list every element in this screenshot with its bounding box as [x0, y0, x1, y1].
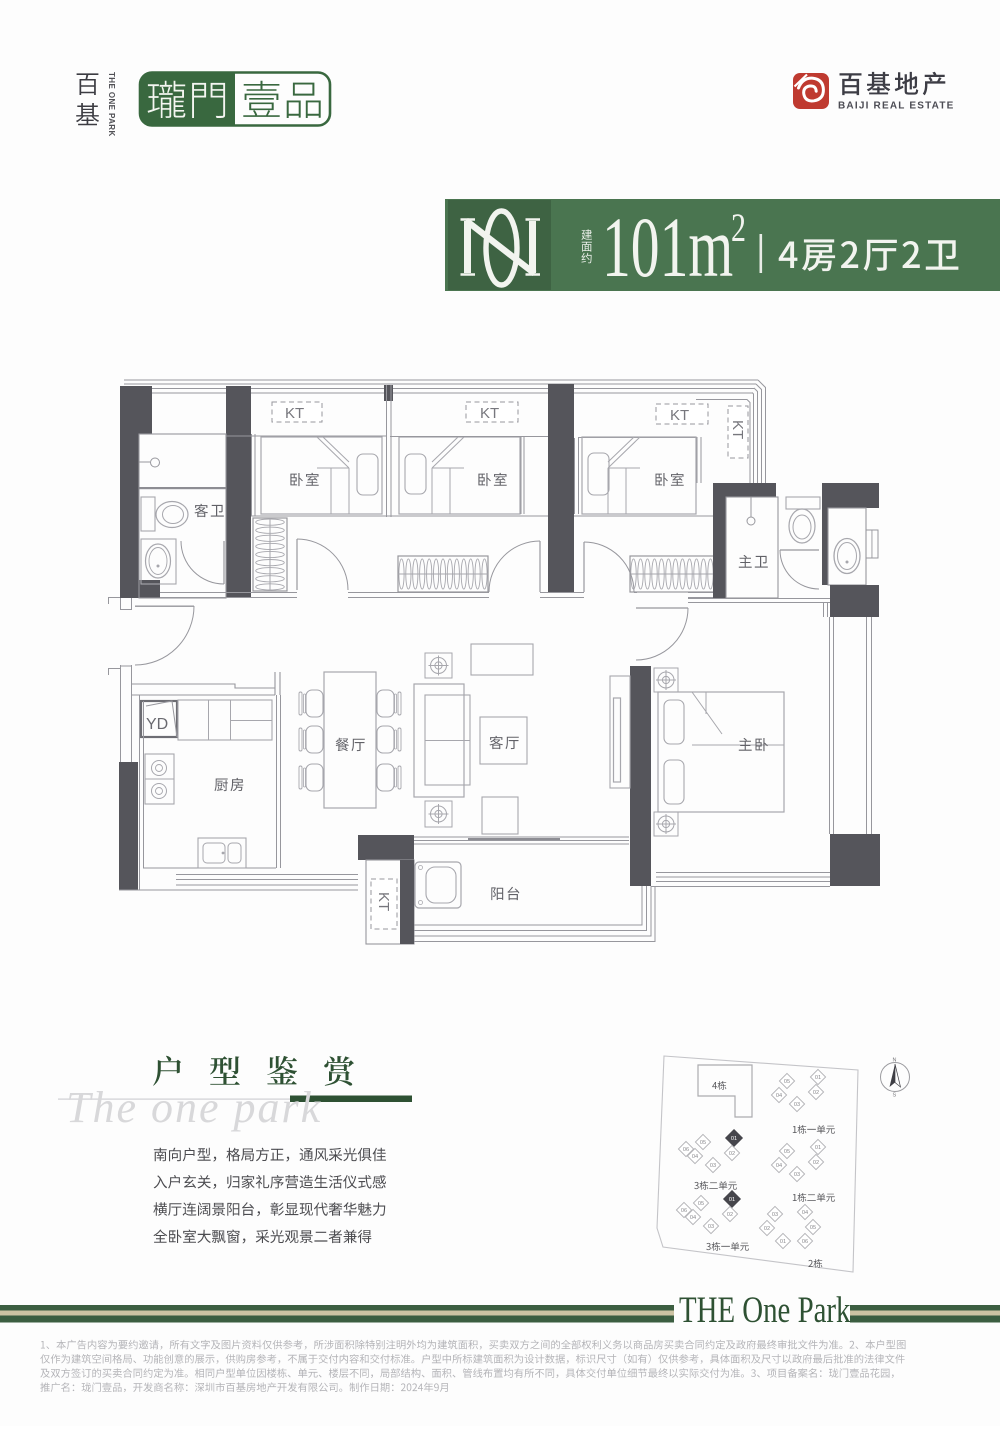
svg-text:04: 04 [692, 1154, 698, 1160]
svg-text:101m: 101m [602, 200, 733, 295]
svg-text:02: 02 [729, 1151, 735, 1157]
svg-text:KT: KT [480, 405, 499, 422]
svg-text:S: S [893, 1093, 897, 1099]
svg-text:05: 05 [784, 1149, 790, 1155]
svg-text:04: 04 [690, 1215, 696, 1221]
svg-text:04: 04 [776, 1093, 782, 1099]
svg-text:06: 06 [802, 1239, 808, 1245]
svg-text:05: 05 [700, 1140, 706, 1146]
svg-text:01: 01 [731, 1136, 737, 1142]
svg-text:05: 05 [810, 1225, 816, 1231]
svg-text:KT: KT [375, 892, 392, 911]
svg-text:02: 02 [813, 1160, 819, 1166]
svg-text:02: 02 [813, 1090, 819, 1096]
svg-text:05: 05 [698, 1201, 704, 1207]
svg-text:KT: KT [729, 420, 746, 439]
svg-text:01: 01 [780, 1239, 786, 1245]
svg-text:02: 02 [727, 1212, 733, 1218]
svg-text:THE One Park: THE One Park [679, 1290, 851, 1331]
svg-text:THE ONE PARK: THE ONE PARK [107, 72, 116, 137]
svg-text:02: 02 [764, 1226, 770, 1232]
svg-text:06: 06 [681, 1208, 687, 1214]
svg-text:YD: YD [146, 716, 168, 733]
svg-text:03: 03 [708, 1224, 714, 1230]
svg-text:KT: KT [285, 405, 304, 422]
svg-text:06: 06 [683, 1147, 689, 1153]
svg-text:03: 03 [772, 1212, 778, 1218]
svg-text:N: N [893, 1058, 897, 1064]
svg-text:2: 2 [731, 205, 746, 250]
svg-text:03: 03 [794, 1102, 800, 1108]
svg-text:The one park: The one park [66, 1083, 322, 1132]
svg-text:03: 03 [710, 1163, 716, 1169]
svg-text:01: 01 [815, 1145, 821, 1151]
svg-text:KT: KT [670, 407, 689, 424]
svg-text:04: 04 [776, 1163, 782, 1169]
svg-text:04: 04 [802, 1210, 808, 1216]
svg-text:03: 03 [794, 1172, 800, 1178]
svg-text:01: 01 [815, 1075, 821, 1081]
svg-text:BAIJI REAL ESTATE: BAIJI REAL ESTATE [838, 101, 955, 112]
svg-text:05: 05 [784, 1079, 790, 1085]
svg-text:01: 01 [729, 1197, 735, 1203]
